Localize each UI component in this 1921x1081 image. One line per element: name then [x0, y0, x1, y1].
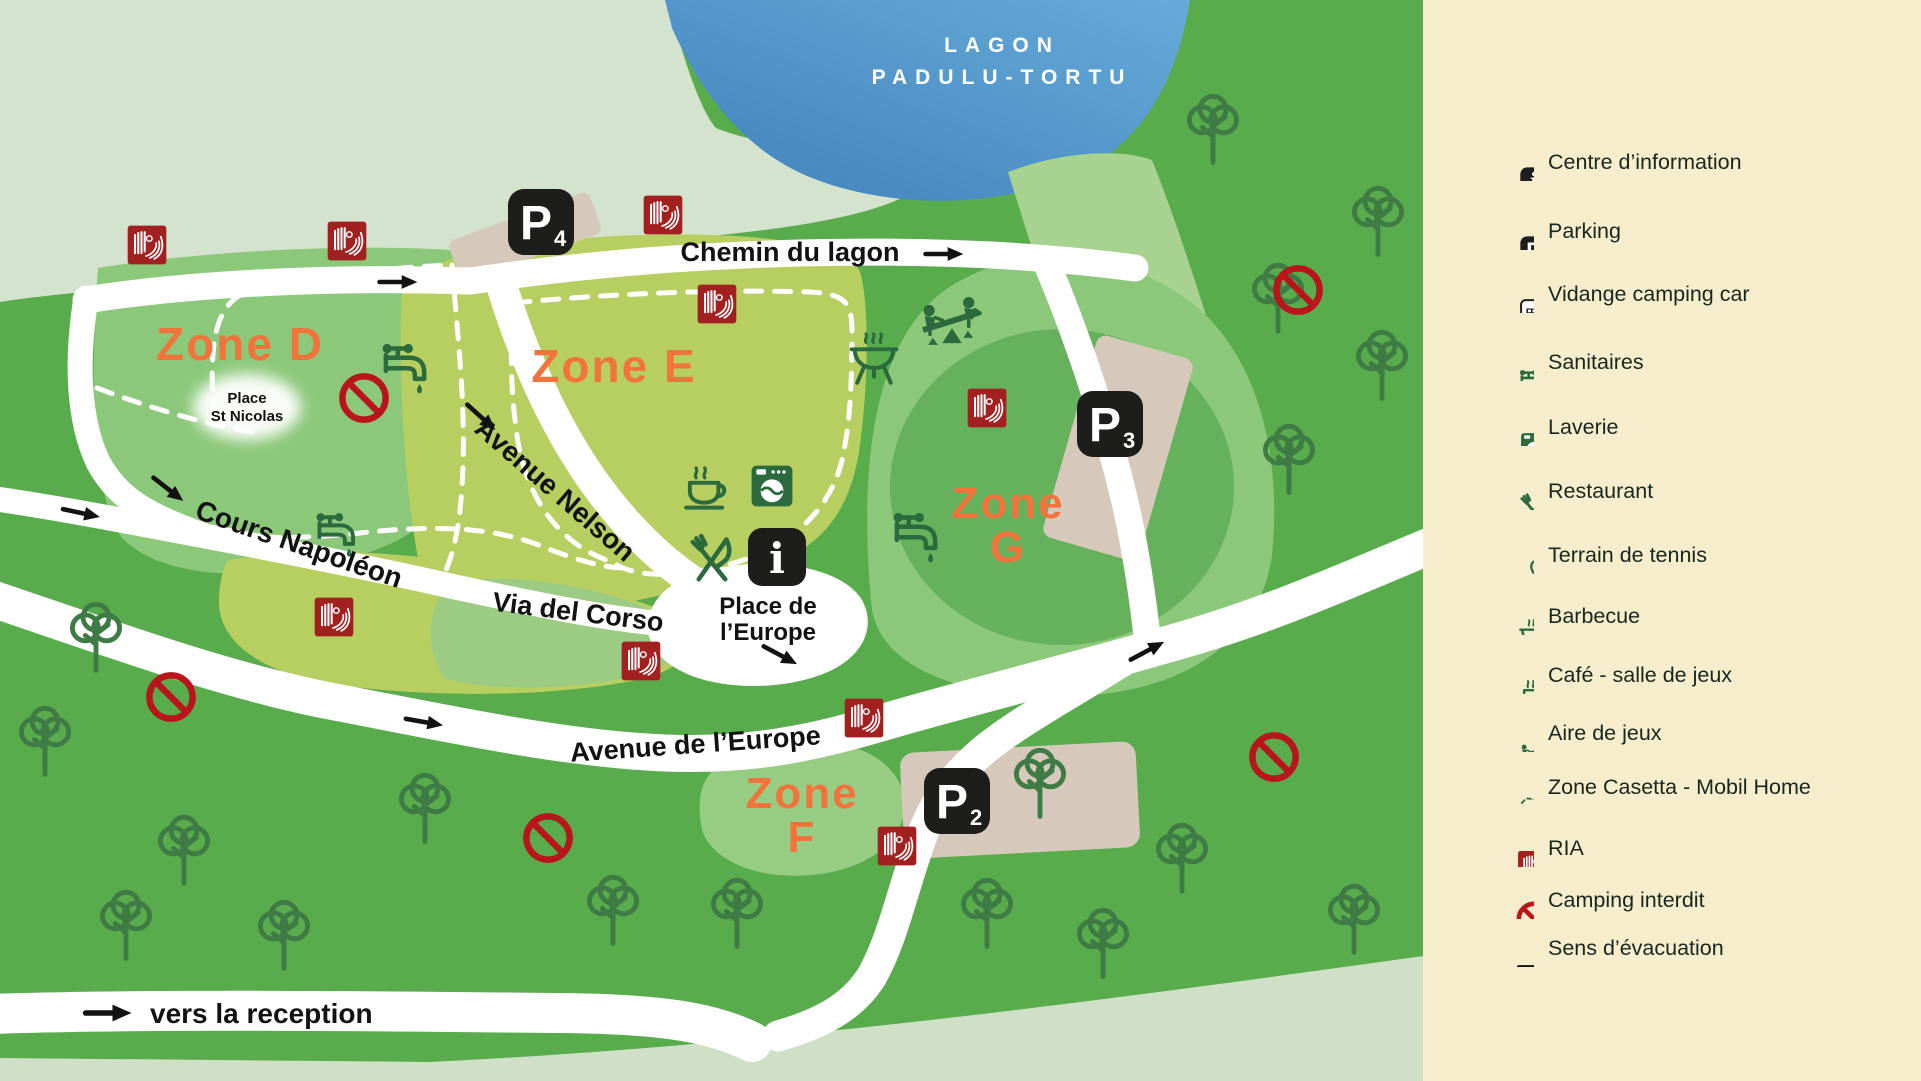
- ria-icon: [128, 226, 167, 265]
- legend-item-parking: Parking: [1423, 211, 1621, 251]
- evacuation-arrow-icon: [1496, 929, 1534, 967]
- place-st-nicolas-halo: [193, 374, 301, 440]
- legend-item-sanitaires: Sanitaires: [1423, 342, 1644, 382]
- ria-icon: [845, 699, 884, 738]
- washing-machine-icon: [1496, 408, 1534, 446]
- place-europe-line2: l’Europe: [720, 619, 816, 646]
- legend-item-label: Restaurant: [1548, 479, 1653, 504]
- legend-item-information: Centre d’information: [1423, 142, 1742, 182]
- parking-sign-number: 4: [554, 226, 567, 251]
- place-st-nicolas-line1: Place: [227, 390, 266, 407]
- place-st-nicolas-line2: St Nicolas: [211, 408, 284, 425]
- lagoon-name-line2: PADULU-TORTU: [872, 66, 1133, 89]
- parking-sign-letter: P: [936, 776, 968, 829]
- legend-item-label: Camping interdit: [1548, 888, 1705, 913]
- parking-sign-p4: P 4: [508, 189, 574, 255]
- legend-item-label: Barbecue: [1548, 604, 1640, 629]
- ria-icon: [698, 285, 737, 324]
- water-tap-icon: [1496, 343, 1534, 381]
- parking-sign-p3: P 3: [1077, 391, 1143, 457]
- legend-item-camping-interdit: Camping interdit: [1423, 880, 1705, 920]
- tennis-racquet-icon: [1496, 536, 1534, 574]
- legend-item-label: Zone Casetta - Mobil Home: [1548, 775, 1811, 800]
- legend-item-label: Parking: [1548, 219, 1621, 244]
- ria-icon: [644, 196, 683, 235]
- information-sign-icon: [1496, 143, 1534, 181]
- legend-item-label: Sens d’évacuation: [1548, 936, 1724, 961]
- legend-item-label: RIA: [1548, 836, 1584, 861]
- parking-sign-p2: P 2: [924, 768, 990, 834]
- seesaw-icon: [1496, 714, 1534, 752]
- parking-sign-number: 3: [1123, 428, 1135, 453]
- info-sign-map: i: [748, 528, 806, 586]
- parking-sign-number: 2: [970, 805, 982, 830]
- legend-item-label: Café - salle de jeux: [1548, 663, 1732, 688]
- zone-e-label: Zone E: [531, 340, 696, 392]
- legend-item-label: Sanitaires: [1548, 350, 1644, 375]
- fire-hose-reel-icon: [1496, 829, 1534, 867]
- legend-item-restaurant: Restaurant: [1423, 471, 1653, 511]
- campsite-map-page: i P: [0, 0, 1921, 1081]
- dashed-zone-icon: [1496, 768, 1534, 806]
- lagoon-name-line1: LAGON: [944, 34, 1060, 57]
- legend-item-label: Vidange camping car: [1548, 282, 1750, 307]
- legend-item-label: Aire de jeux: [1548, 721, 1662, 746]
- parking-sign-letter: P: [520, 197, 552, 250]
- legend-item-vidange: Vidange camping car: [1423, 274, 1750, 314]
- barbecue-grill-icon: [1496, 597, 1534, 635]
- zone-f-label-line2: F: [788, 813, 817, 862]
- ria-icon: [622, 642, 661, 681]
- camper-van-icon: [1496, 275, 1534, 313]
- legend-item-ria: RIA: [1423, 828, 1584, 868]
- zone-g-label-line2: G: [990, 523, 1026, 572]
- legend-item-label: Terrain de tennis: [1548, 543, 1707, 568]
- legend-item-label: Centre d’information: [1548, 150, 1742, 175]
- zone-d-label: Zone D: [156, 318, 324, 370]
- legend-item-tennis: Terrain de tennis: [1423, 535, 1707, 575]
- zone-g-label-line1: Zone: [951, 479, 1064, 528]
- cutlery-icon: [1496, 472, 1534, 510]
- legend-item-aire-de-jeux: Aire de jeux: [1423, 713, 1662, 753]
- no-camping-icon: [1496, 881, 1534, 919]
- parking-sign-icon: [1496, 212, 1534, 250]
- ria-icon: [328, 222, 367, 261]
- legend-item-cafe: Café - salle de jeux: [1423, 655, 1732, 695]
- zone-f-label-line1: Zone: [745, 769, 858, 818]
- place-europe-line1: Place de: [719, 593, 816, 620]
- parking-sign-letter: P: [1089, 399, 1121, 452]
- ria-icon: [315, 598, 354, 637]
- legend-panel: Centre d’information Parking Vidange cam…: [1423, 0, 1921, 1081]
- coffee-cup-icon: [1496, 656, 1534, 694]
- reception-label: vers la reception: [150, 998, 373, 1029]
- ria-icon: [878, 827, 917, 866]
- map-canvas: i P: [0, 0, 1423, 1081]
- legend-item-barbecue: Barbecue: [1423, 596, 1640, 636]
- legend-item-label: Laverie: [1548, 415, 1619, 440]
- washing-machine-icon: [752, 466, 793, 507]
- legend-item-sens-evacuation: Sens d’évacuation: [1423, 928, 1724, 968]
- info-sign-letter: i: [769, 534, 785, 583]
- legend-item-zone-casetta: Zone Casetta - Mobil Home: [1423, 767, 1811, 807]
- legend-item-laverie: Laverie: [1423, 407, 1619, 447]
- ria-icon: [968, 389, 1007, 428]
- road-label-chemin-du-lagon: Chemin du lagon: [681, 237, 900, 267]
